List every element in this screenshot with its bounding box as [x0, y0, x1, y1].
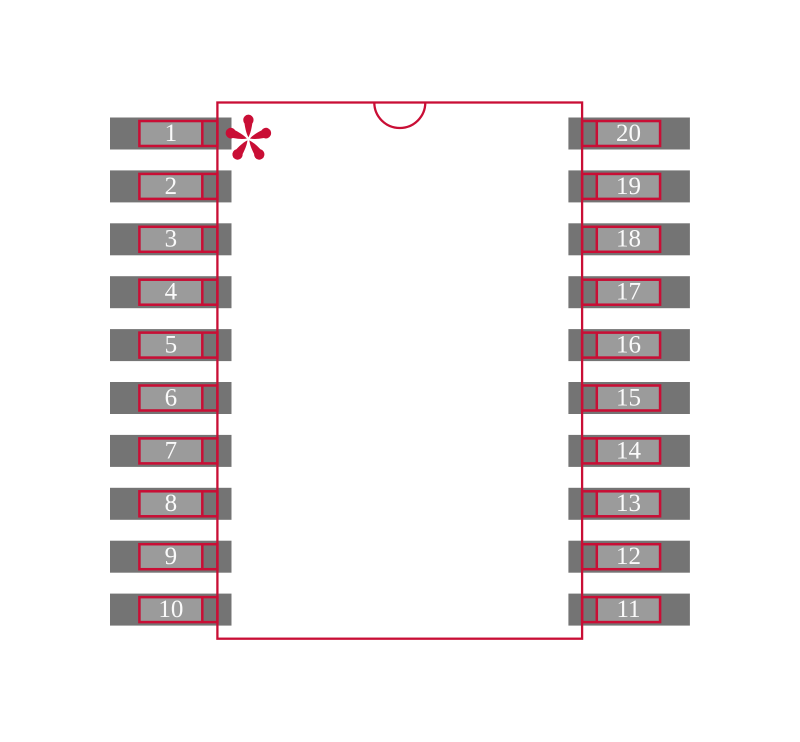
svg-text:15: 15: [616, 384, 641, 411]
svg-text:16: 16: [616, 332, 641, 359]
svg-text:7: 7: [165, 437, 178, 464]
svg-text:2: 2: [165, 173, 178, 200]
svg-text:18: 18: [616, 226, 641, 253]
svg-text:17: 17: [616, 279, 641, 306]
svg-text:6: 6: [165, 384, 178, 411]
svg-text:8: 8: [165, 490, 178, 517]
svg-text:3: 3: [165, 226, 178, 253]
svg-text:20: 20: [616, 120, 641, 147]
svg-text:1: 1: [165, 120, 178, 147]
svg-text:9: 9: [165, 543, 178, 570]
svg-text:10: 10: [158, 596, 183, 623]
svg-text:12: 12: [616, 543, 641, 570]
svg-text:14: 14: [616, 437, 642, 464]
svg-text:5: 5: [165, 332, 178, 359]
svg-text:4: 4: [165, 279, 178, 306]
svg-text:13: 13: [616, 490, 641, 517]
svg-text:19: 19: [616, 173, 641, 200]
svg-text:11: 11: [616, 596, 640, 623]
